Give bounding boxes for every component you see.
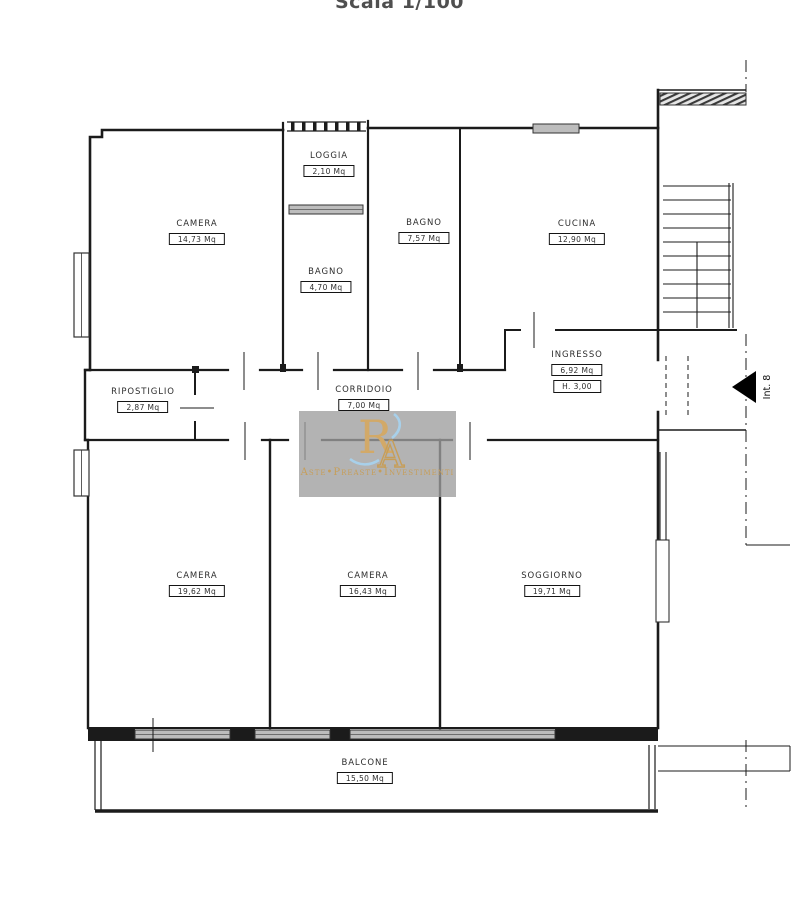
entrance-unit-label: Int. 8: [762, 375, 773, 400]
room-name: RIPOSTIGLIO: [111, 388, 175, 397]
watermark-monogram-a: A: [377, 435, 405, 469]
room-label-balcone: BALCONE 15,50 Mq: [337, 759, 393, 784]
watermark-logo-icon: R A: [332, 411, 424, 469]
entrance-arrow-icon: [732, 371, 756, 403]
room-label-bagno-2: BAGNO 7,57 Mq: [398, 219, 449, 244]
room-name: BAGNO: [398, 219, 449, 228]
room-name: BAGNO: [300, 268, 351, 277]
room-area: 12,90 Mq: [549, 233, 605, 246]
entrance-door: [666, 356, 688, 416]
watermark-text: Aste•Preaste•Investimenti: [301, 467, 455, 478]
room-label-corridoio: CORRIDOIO 7,00 Mq: [335, 386, 392, 411]
room-label-soggiorno: SOGGIORNO 19,71 Mq: [521, 572, 583, 597]
room-area: 16,43 Mq: [340, 585, 396, 598]
room-label-camera-1: CAMERA 14,73 Mq: [169, 220, 225, 245]
room-area: 2,10 Mq: [303, 165, 354, 178]
floor-plan-page: Scala 1/100: [0, 0, 799, 900]
room-name: CAMERA: [340, 572, 396, 581]
room-label-bagno-1: BAGNO 4,70 Mq: [300, 268, 351, 293]
dimension-ticks: [153, 312, 534, 752]
room-name: CORRIDOIO: [335, 386, 392, 395]
room-area: 6,92 Mq: [551, 364, 602, 377]
room-name: SOGGIORNO: [521, 572, 583, 581]
room-area: 19,62 Mq: [169, 585, 225, 598]
room-name: LOGGIA: [303, 152, 354, 161]
room-name: CAMERA: [169, 220, 225, 229]
room-area: 19,71 Mq: [524, 585, 580, 598]
room-area: 14,73 Mq: [169, 233, 225, 246]
stairs: [655, 90, 790, 771]
room-name: CAMERA: [169, 572, 225, 581]
room-label-cucina: CUCINA 12,90 Mq: [549, 220, 605, 245]
room-label-loggia: LOGGIA 2,10 Mq: [303, 152, 354, 177]
watermark: R A Aste•Preaste•Investimenti: [299, 411, 456, 497]
room-area: 15,50 Mq: [337, 772, 393, 785]
room-height: H. 3,00: [553, 380, 601, 393]
scale-title: Scala 1/100: [335, 0, 464, 13]
room-area: 7,57 Mq: [398, 232, 449, 245]
room-label-ingresso: INGRESSO 6,92 Mq H. 3,00: [551, 351, 602, 393]
loggia-balustrade: [287, 122, 366, 131]
room-label-ripostiglio: RIPOSTIGLIO 2,87 Mq: [111, 388, 175, 413]
room-name: CUCINA: [549, 220, 605, 229]
room-label-camera-3: CAMERA 16,43 Mq: [340, 572, 396, 597]
room-area: 7,00 Mq: [338, 399, 389, 412]
room-label-camera-2: CAMERA 19,62 Mq: [169, 572, 225, 597]
room-name: BALCONE: [337, 759, 393, 768]
room-area: 4,70 Mq: [300, 281, 351, 294]
room-area: 2,87 Mq: [117, 401, 168, 414]
bottom-wall-windows: [88, 727, 658, 741]
room-name: INGRESSO: [551, 351, 602, 360]
